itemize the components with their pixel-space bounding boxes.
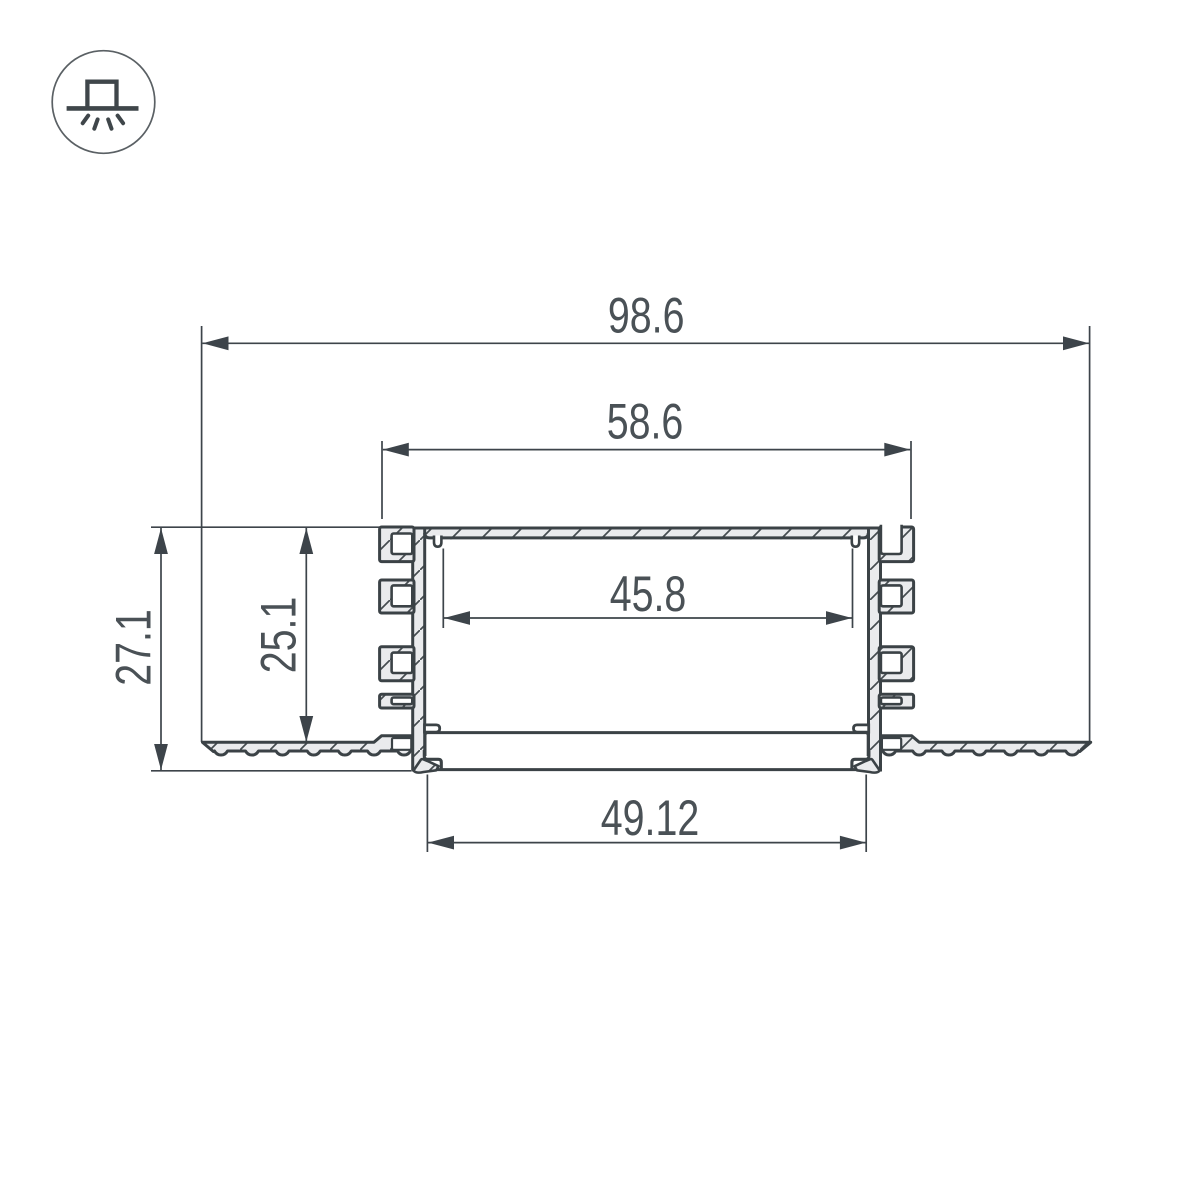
svg-text:25.1: 25.1 — [250, 597, 307, 674]
svg-text:58.6: 58.6 — [607, 393, 684, 450]
svg-text:98.6: 98.6 — [608, 287, 685, 344]
svg-text:49.12: 49.12 — [601, 789, 700, 846]
svg-text:27.1: 27.1 — [105, 609, 162, 686]
svg-text:45.8: 45.8 — [610, 565, 687, 622]
